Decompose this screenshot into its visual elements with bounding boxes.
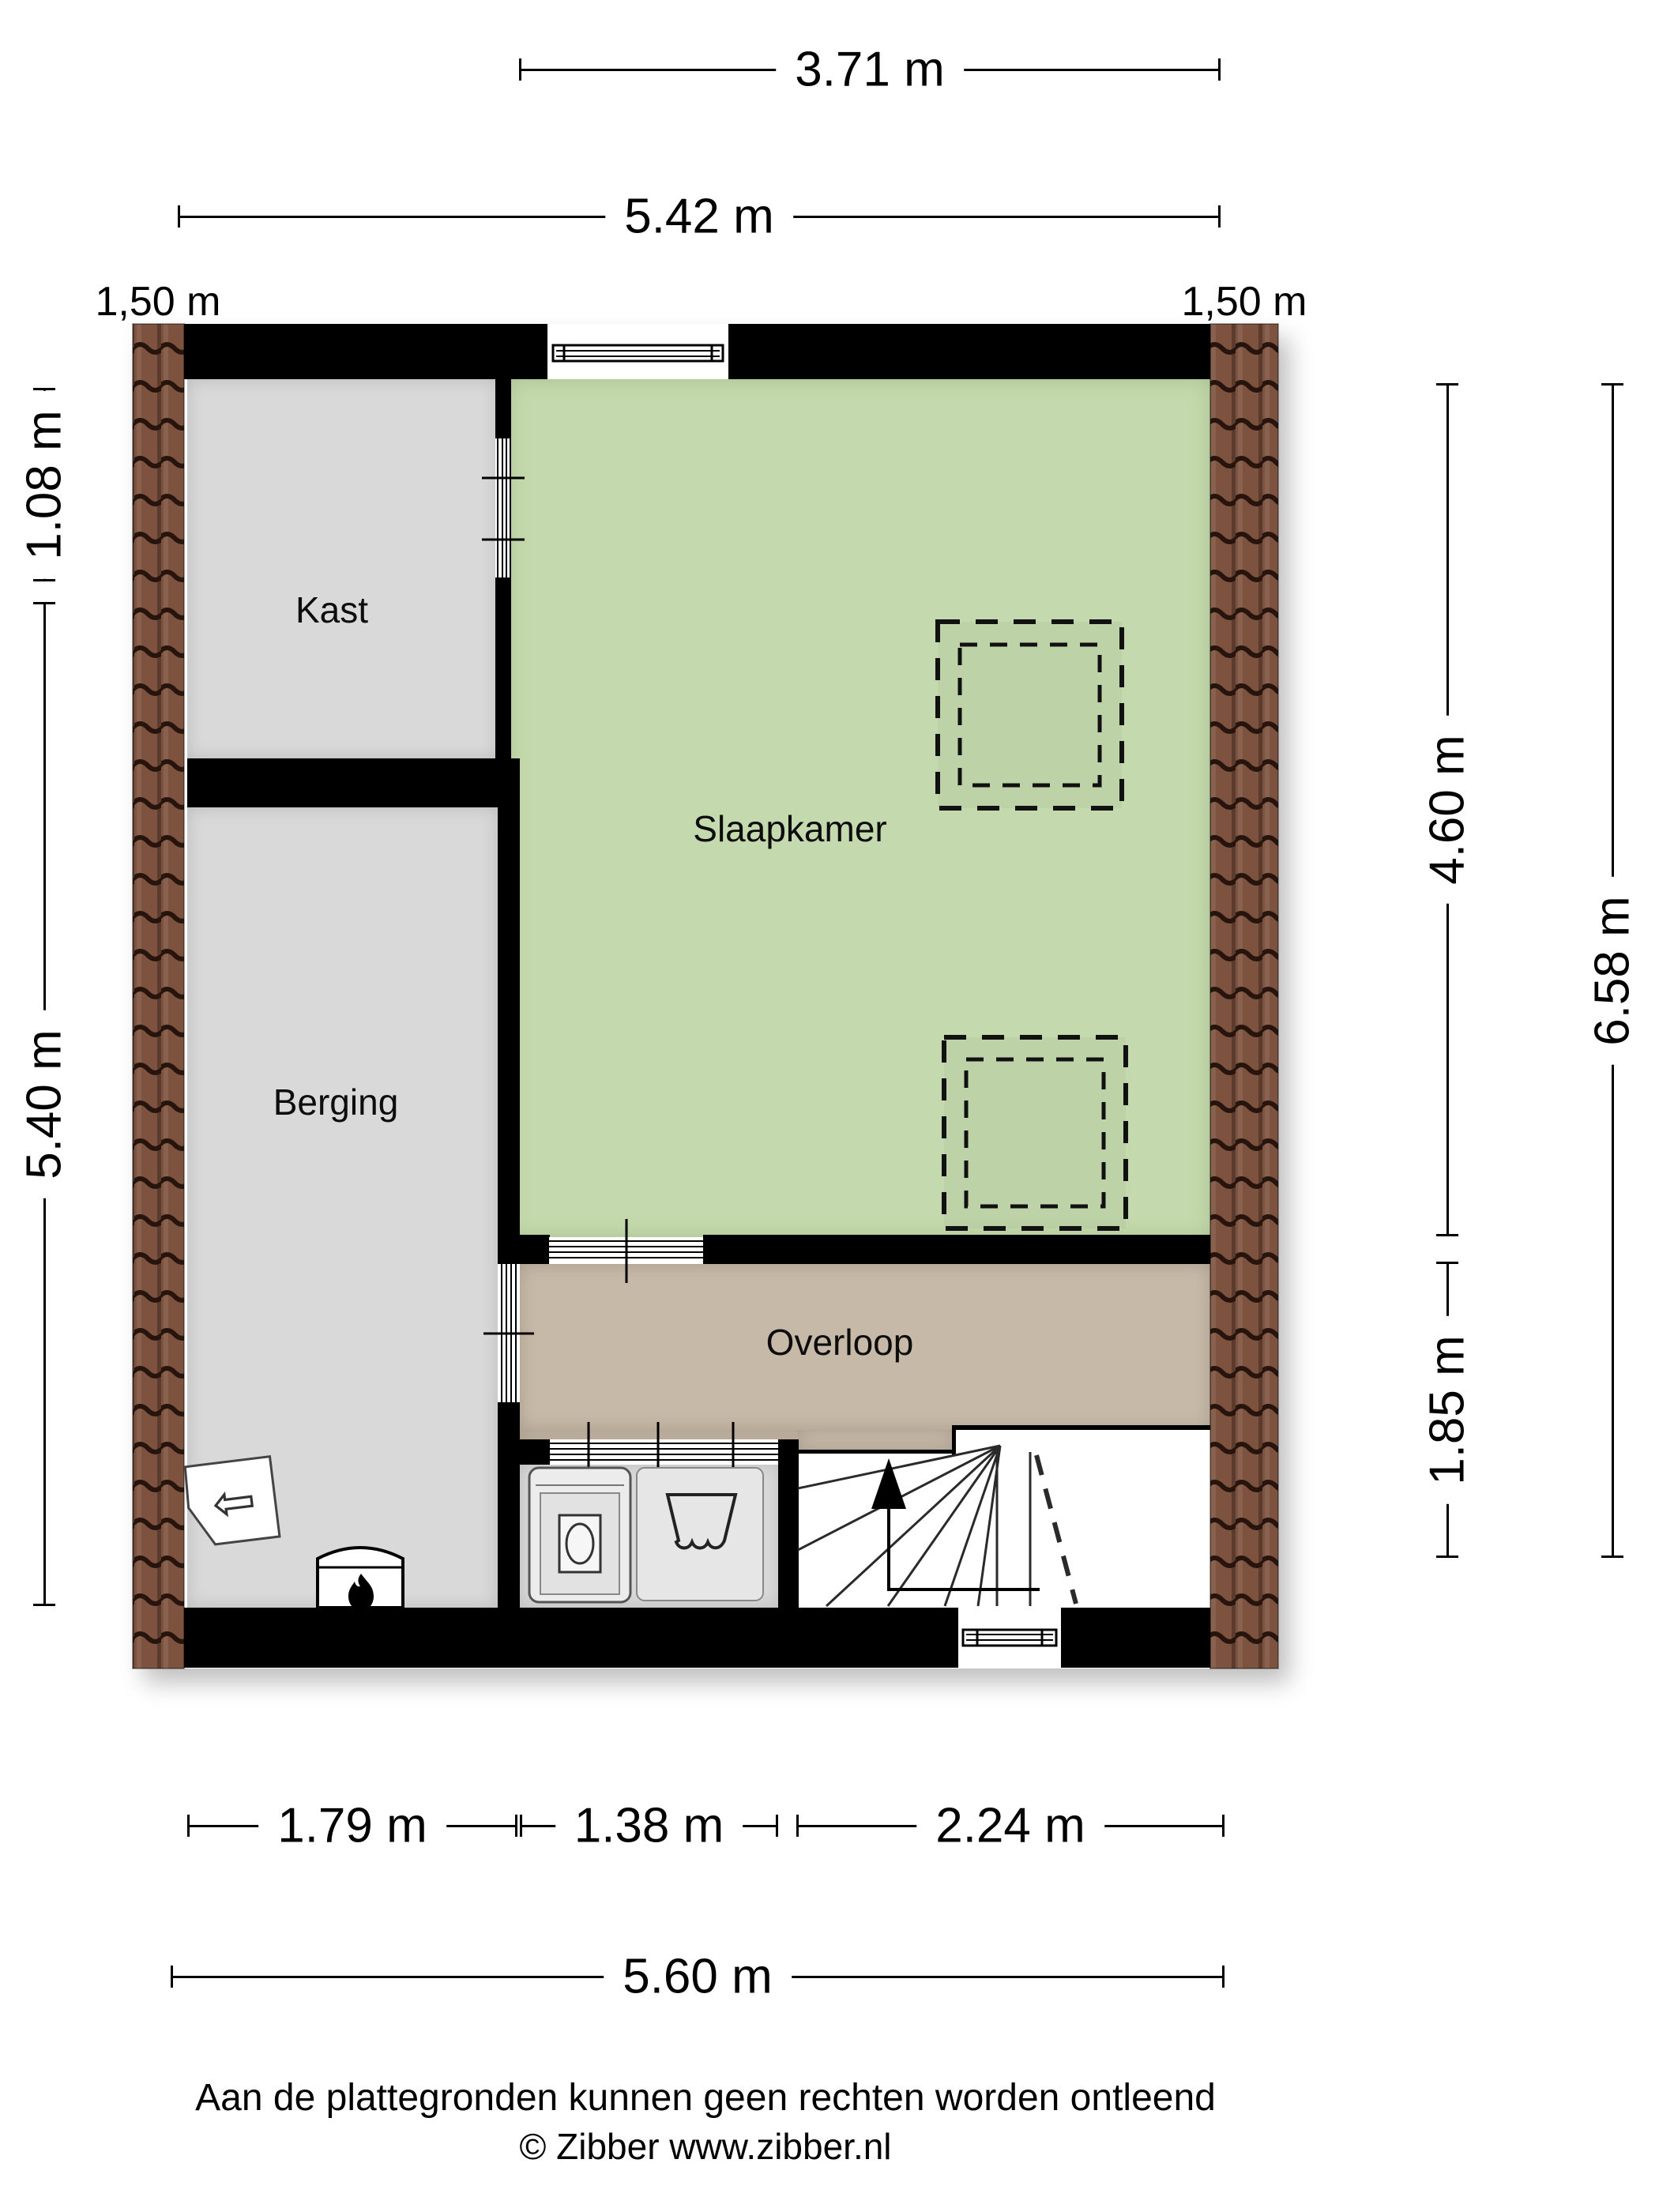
dim-top-width: 3.71 m [519, 58, 1221, 81]
dim-tick [776, 1815, 778, 1837]
room-label-berging: Berging [217, 1081, 454, 1123]
wall-top-left [184, 324, 547, 379]
dim-upper-width: 5.42 m [178, 205, 1221, 228]
stair-notch-left-edge [952, 1425, 956, 1455]
dim-label: 1.08 m [17, 391, 73, 579]
dim-label: 5.60 m [604, 1949, 792, 2005]
dim-right-knee-label: 1,50 m [1165, 278, 1323, 325]
wall-laundry-east [778, 1439, 799, 1608]
dim-tick [187, 1815, 190, 1837]
dim-right-total: 6.58 m [1601, 383, 1623, 1558]
wall-bedroom-south-left [498, 1235, 550, 1264]
wall-laundry-west [498, 1465, 520, 1608]
dim-tick [1436, 1234, 1458, 1236]
dim-label: 5.42 m [605, 189, 793, 245]
dim-right-upper: 4.60 m [1436, 383, 1458, 1236]
dim-tick [1218, 205, 1221, 228]
dim-tick [1436, 1556, 1458, 1558]
wall-kast-divider-upper [495, 379, 511, 438]
stair-notch-top-edge [952, 1425, 1210, 1430]
dim-label: 4.60 m [1420, 716, 1476, 904]
dim-bottom-berging: 1.79 m [187, 1815, 517, 1837]
dim-tick [1601, 383, 1623, 386]
footer-disclaimer: Aan de plattegronden kunnen geen rechten… [152, 2076, 1258, 2120]
dim-left-knee-label: 1,50 m [79, 278, 237, 325]
footer-copyright: © Zibber www.zibber.nl [152, 2125, 1258, 2168]
dim-tick [796, 1815, 799, 1837]
wall-berging-east [498, 807, 520, 1239]
dim-label: 1.38 m [555, 1798, 743, 1854]
dim-bottom-total: 5.60 m [171, 1966, 1224, 1988]
wall-bottom-left [184, 1608, 958, 1668]
room-berging-floor [187, 807, 498, 1608]
dim-label: 5.40 m [17, 1010, 73, 1198]
stair-top-edge [798, 1430, 953, 1454]
dim-tick [1436, 383, 1458, 386]
laundry-niche-floor [520, 1463, 781, 1608]
dim-tick [178, 205, 180, 228]
dim-label: 3.71 m [776, 42, 964, 98]
dim-tick [1436, 1262, 1458, 1264]
room-label-slaapkamer: Slaapkamer [632, 807, 948, 850]
wall-kast-bottom [187, 758, 520, 807]
dim-label: 2.24 m [916, 1798, 1104, 1854]
dim-tick [33, 388, 55, 390]
dim-tick [33, 1604, 55, 1606]
dim-tick [1222, 1966, 1224, 1988]
dim-label: 1.85 m [1420, 1316, 1476, 1504]
room-label-overloop: Overloop [721, 1321, 958, 1364]
dim-tick [171, 1966, 173, 1988]
wall-top-right [728, 324, 1210, 379]
dim-tick [515, 1815, 517, 1837]
dim-bottom-laundry: 1.38 m [520, 1815, 778, 1837]
dim-tick [519, 58, 521, 81]
dim-label: 1.79 m [258, 1798, 446, 1854]
room-label-kast: Kast [253, 589, 411, 631]
wall-bottom-right [1061, 1608, 1210, 1668]
wall-kast-divider-lower [495, 577, 511, 760]
dim-tick [1218, 58, 1221, 81]
dim-left-top: 1.08 m [33, 388, 55, 581]
stairwell-floor [798, 1430, 1210, 1608]
wall-overloop-south-left [498, 1439, 550, 1465]
dim-bottom-stairs: 2.24 m [796, 1815, 1224, 1837]
room-kast-floor [187, 379, 498, 758]
dim-tick [33, 579, 55, 581]
dim-tick [520, 1815, 522, 1837]
dim-right-lower: 1.85 m [1436, 1262, 1458, 1558]
dim-left-main: 5.40 m [33, 602, 55, 1606]
dim-label: 6.58 m [1585, 877, 1641, 1065]
dim-tick [33, 602, 55, 604]
wall-bedroom-south-right [703, 1235, 1210, 1264]
dim-tick [1601, 1556, 1623, 1558]
dim-tick [1222, 1815, 1224, 1837]
